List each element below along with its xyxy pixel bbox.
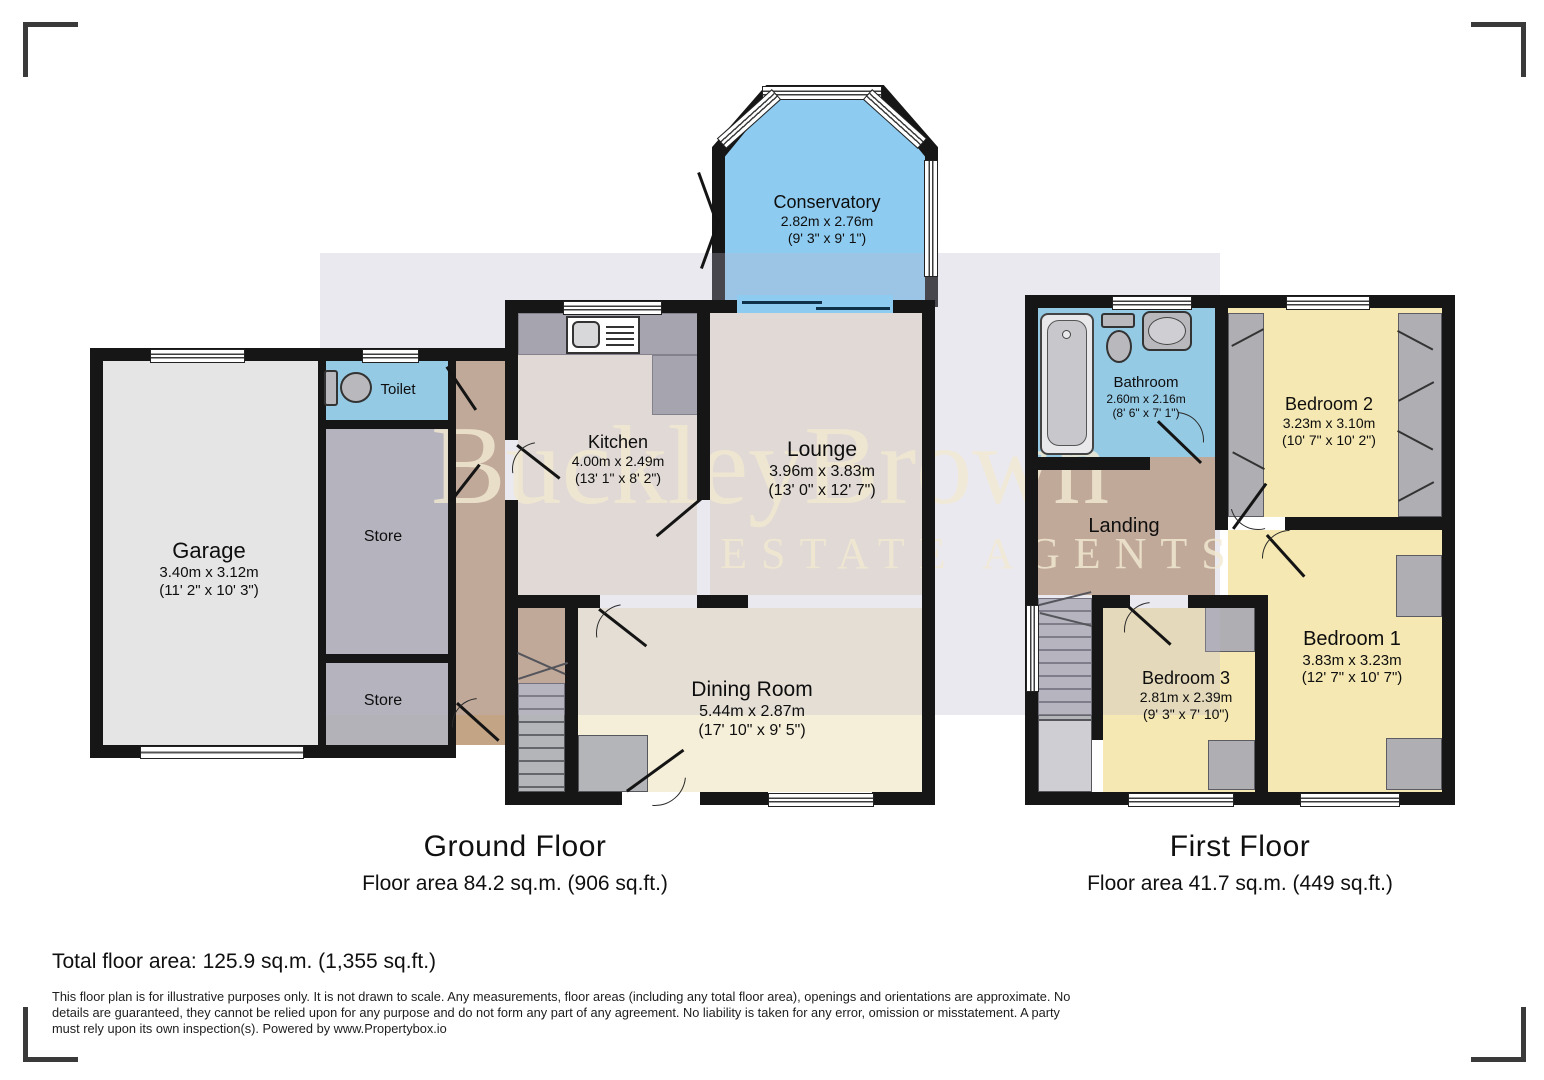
first-floor-title-block: First Floor Floor area 41.7 sq.m. (449 s… (1040, 830, 1440, 896)
room-dims-imperial: (9' 3" x 9' 1") (727, 230, 927, 247)
toilet-top-window (362, 349, 419, 363)
wall (505, 792, 622, 805)
wall (505, 500, 518, 805)
bathroom-wc-cistern (1101, 313, 1135, 328)
wall (1215, 460, 1228, 530)
room-label-bedroom3: Bedroom 3 2.81m x 2.39m (9' 3" x 7' 10") (1096, 668, 1276, 722)
wall (1215, 308, 1228, 473)
disclaimer-text: This floor plan is for illustrative purp… (52, 989, 1082, 1037)
wall (505, 300, 518, 440)
room-label-kitchen: Kitchen 4.00m x 2.49m (13' 1" x 8' 2") (528, 432, 708, 486)
room-label-conservatory: Conservatory 2.82m x 2.76m (9' 3" x 9' 1… (727, 192, 927, 246)
floor-area: Floor area 41.7 sq.m. (449 sq.ft.) (1040, 872, 1440, 896)
room-label-bathroom: Bathroom 2.60m x 2.16m (8' 6" x 7' 1") (1086, 374, 1206, 420)
room-dims-metric: 3.23m x 3.10m (1239, 415, 1419, 432)
wall (518, 595, 600, 608)
wall (1285, 517, 1442, 530)
floor-title: Ground Floor (315, 830, 715, 864)
bedroom3-wardrobe-bottom-right (1208, 740, 1255, 790)
room-dims-metric: 2.60m x 2.16m (1086, 392, 1206, 406)
garage-door (140, 746, 304, 759)
room-dims-metric: 2.82m x 2.76m (727, 213, 927, 230)
wall (1025, 295, 1455, 308)
wall (565, 608, 578, 792)
room-dims-imperial: (13' 1" x 8' 2") (528, 470, 708, 487)
bathroom-sink-bowl (1148, 317, 1186, 345)
room-name: Dining Room (642, 678, 862, 703)
landing-left-window (1026, 605, 1039, 692)
wall (1442, 295, 1455, 805)
bedroom2-top-window (1286, 296, 1370, 310)
room-dims-metric: 5.44m x 2.87m (642, 703, 862, 722)
dining-bottom-window (768, 793, 874, 807)
wall (922, 300, 935, 805)
room-dims-metric: 3.96m x 3.83m (722, 463, 922, 482)
wall (872, 792, 935, 805)
room-name: Bedroom 1 (1262, 628, 1442, 652)
room-name: Bedroom 2 (1239, 394, 1419, 415)
room-dims-imperial: (10' 7" x 10' 2") (1239, 432, 1419, 449)
room-label-dining: Dining Room 5.44m x 2.87m (17' 10" x 9' … (642, 678, 862, 741)
room-label-bedroom2: Bedroom 2 3.23m x 3.10m (10' 7" x 10' 2"… (1239, 394, 1419, 448)
room-name: Garage (109, 538, 309, 564)
bathroom-top-window (1112, 296, 1192, 310)
floorplan-page: { "watermark": { "line1": "BuckleyBrown"… (0, 0, 1544, 1080)
room-dims-imperial: (8' 6" x 7' 1") (1086, 406, 1206, 420)
kitchen-sink-drainer (606, 322, 634, 348)
wall (1025, 295, 1038, 805)
room-label-lounge: Lounge 3.96m x 3.83m (13' 0" x 12' 7") (722, 438, 922, 501)
room-name: Conservatory (727, 192, 927, 213)
room-name: Store (333, 528, 433, 547)
room-name: Lounge (722, 438, 922, 463)
room-label-landing: Landing (1064, 515, 1184, 539)
room-dims-imperial: (11' 2" x 10' 3") (109, 582, 309, 600)
corner-bracket-bottom-left (23, 1007, 78, 1062)
room-name: Toilet (348, 381, 448, 399)
room-name: Bathroom (1086, 374, 1206, 392)
wall (90, 348, 103, 758)
room-name: Kitchen (528, 432, 708, 453)
room-label-bedroom1: Bedroom 1 3.83m x 3.23m (12' 7" x 10' 7"… (1262, 628, 1442, 687)
wall (1092, 595, 1130, 608)
room-label-store2: Store (333, 692, 433, 711)
bedroom1-wardrobe-bottom-right (1386, 738, 1442, 790)
wall (1188, 595, 1268, 608)
wall (700, 792, 768, 805)
room-dims-imperial: (9' 3" x 7' 10") (1096, 706, 1276, 723)
room-label-store1: Store (333, 528, 433, 547)
room-name: Bedroom 3 (1096, 668, 1276, 689)
sliding-door-line-2 (816, 307, 890, 310)
wall (326, 654, 448, 663)
toilet-wc-cistern (324, 370, 338, 406)
room-name: Store (333, 692, 433, 711)
corner-bracket-top-left (23, 22, 78, 77)
total-floor-area: Total floor area: 125.9 sq.m. (1,355 sq.… (52, 950, 436, 974)
room-dims-imperial: (17' 10" x 9' 5") (642, 722, 862, 741)
sliding-door-line-1 (742, 301, 822, 304)
garage-top-window (150, 349, 245, 363)
wall (1038, 457, 1150, 470)
bathtub-tap (1062, 330, 1071, 339)
kitchen-top-window (563, 301, 662, 315)
room-dims-metric: 4.00m x 2.49m (528, 453, 708, 470)
room-name: Landing (1064, 515, 1184, 539)
wall (448, 361, 456, 745)
floor-title: First Floor (1040, 830, 1440, 864)
room-label-garage: Garage 3.40m x 3.12m (11' 2" x 10' 3") (109, 538, 309, 599)
room-label-toilet: Toilet (348, 381, 448, 399)
corner-bracket-bottom-right (1471, 1007, 1526, 1062)
room-dims-metric: 2.81m x 2.39m (1096, 689, 1276, 706)
bedroom3-bottom-window (1128, 793, 1234, 807)
bathroom-wc-bowl (1106, 330, 1132, 363)
room-dims-imperial: (13' 0" x 12' 7") (722, 482, 922, 501)
corner-bracket-top-right (1471, 22, 1526, 77)
wall (326, 420, 448, 429)
ground-floor-title-block: Ground Floor Floor area 84.2 sq.m. (906 … (315, 830, 715, 896)
bedroom1-bottom-window (1300, 793, 1400, 807)
floor-area: Floor area 84.2 sq.m. (906 sq.ft.) (315, 872, 715, 896)
wall (318, 361, 326, 745)
first-floor-stairs-lower (1038, 720, 1092, 792)
room-dims-metric: 3.83m x 3.23m (1262, 652, 1442, 670)
conservatory-sliding-door (737, 295, 893, 313)
kitchen-sink-basin (572, 321, 600, 348)
room-dims-metric: 3.40m x 3.12m (109, 564, 309, 582)
bedroom1-wardrobe-top-right (1396, 555, 1442, 617)
room-dims-imperial: (12' 7" x 10' 7") (1262, 669, 1442, 687)
wall (697, 595, 748, 608)
